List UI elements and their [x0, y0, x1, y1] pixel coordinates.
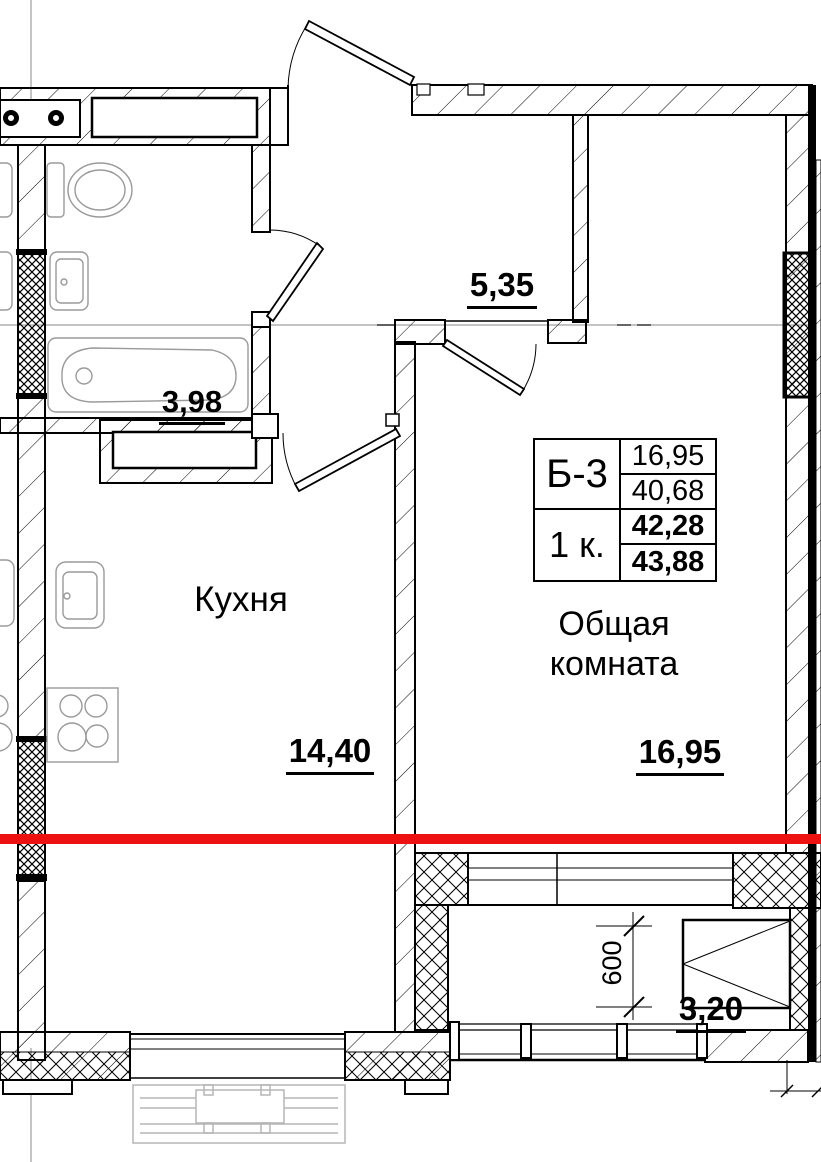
stove-symbol [47, 688, 118, 762]
area-value-cell: 42,28 [621, 510, 715, 545]
balcony-area-label: 3,20 [656, 952, 766, 1033]
red-section-line [0, 834, 821, 844]
apartment-floor-plan: 5,35 3,98 Кухня 14,40 Общая комната 16,9… [0, 0, 821, 1162]
apartment-info-table: Б-3 1 к. 16,95 40,68 42,28 43,88 [533, 438, 717, 582]
neighbor-fixtures-cut [0, 163, 14, 751]
area-value-cell: 16,95 [621, 440, 715, 475]
area-value-cell: 40,68 [621, 475, 715, 510]
balcony-depth-dimension: 600 [597, 933, 627, 993]
axis-marks-bottom-right [770, 1060, 821, 1097]
washbasin-symbol [50, 252, 88, 310]
bathroom-area-label: 3,98 [142, 348, 242, 425]
toilet-symbol [47, 163, 132, 217]
living-room-door [443, 340, 536, 395]
kitchen-area-label: 14,40 [275, 694, 385, 775]
kitchen-name-label: Кухня [166, 580, 316, 620]
kitchen-window [130, 1034, 345, 1078]
balcony-door-window [468, 853, 733, 905]
kitchen-sink-symbol [56, 562, 104, 628]
walls [0, 84, 821, 1097]
rooms-count-cell: 1 к. [535, 510, 621, 580]
area-value-cell: 43,88 [621, 545, 715, 580]
flat-type-cell: Б-3 [535, 440, 621, 510]
kitchen-door [283, 429, 400, 491]
wall-niche-top [92, 98, 257, 137]
living-room-area-label: 16,95 [625, 695, 735, 776]
wall-niche-bath [113, 432, 256, 468]
faint-balcony-below [133, 1085, 345, 1143]
entrance-door [288, 21, 414, 88]
hallway-area-label: 5,35 [447, 228, 557, 309]
bathroom-door [267, 230, 323, 321]
living-room-name-label: Общая комната [534, 604, 694, 684]
